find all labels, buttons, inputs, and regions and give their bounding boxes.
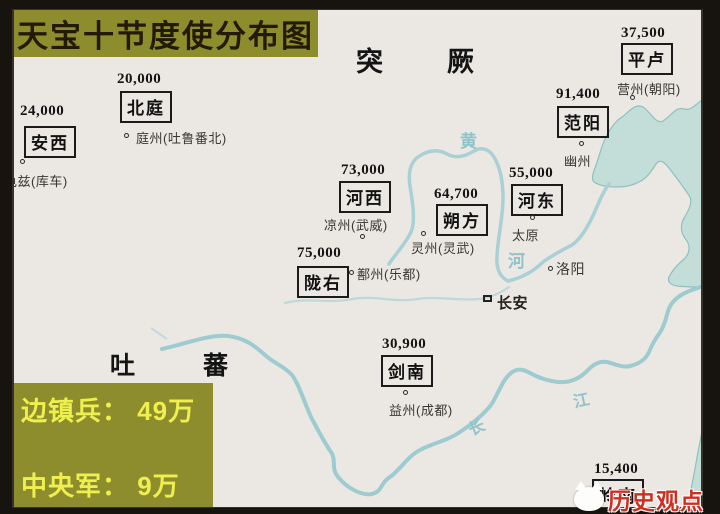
city-label-yingzhou: 营州(朝阳) <box>617 79 681 98</box>
map-title-bar: 天宝十节度使分布图 <box>13 10 318 57</box>
city-marker-lingzhou <box>421 231 426 236</box>
troops-anxi: 24,000 <box>20 103 64 120</box>
city-label-qiuci: 龟兹(库车) <box>4 171 68 190</box>
yellow-river-label-char1: 黄 <box>460 127 477 152</box>
troops-fanyang: 91,400 <box>556 86 600 103</box>
yangtze-label-char2: 江 <box>571 386 592 413</box>
troops-beiting: 20,000 <box>117 71 161 88</box>
garrison-box-pinglu: 平卢 <box>621 43 673 75</box>
yangtze-label-char1: 长 <box>464 412 488 440</box>
troops-hexi: 73,000 <box>341 162 385 179</box>
legend-central-troops: 中央军： 9万 <box>21 471 180 501</box>
city-marker-yizhou <box>403 390 408 395</box>
capital-label-changan: 长安 <box>497 292 528 313</box>
map-screenshot: 天宝十节度使分布图 突厥 吐蕃 黄 河 长 江 24,000 安西 龟兹(库车)… <box>0 0 720 514</box>
city-label-shanzhou: 鄯州(乐都) <box>357 264 421 283</box>
city-marker-qiuci <box>20 159 25 164</box>
troops-pinglu: 37,500 <box>621 25 665 42</box>
city-marker-liangzhou <box>360 234 365 239</box>
city-marker-yingzhou <box>630 95 635 100</box>
photo-border-left <box>0 0 12 514</box>
legend-border-troops: 边镇兵： 49万 <box>21 396 195 426</box>
garrison-box-jiannan: 剑南 <box>381 355 433 387</box>
garrison-box-fanyang: 范阳 <box>557 106 609 138</box>
city-label-luoyang: 洛阳 <box>556 259 585 279</box>
city-label-taiyuan: 太原 <box>512 225 539 244</box>
troops-lingnan: 15,400 <box>594 461 638 478</box>
garrison-box-longyou: 陇右 <box>297 266 349 298</box>
city-label-youzhou: 幽州 <box>564 151 591 170</box>
garrison-box-beiting: 北庭 <box>120 91 172 123</box>
capital-marker-changan <box>483 295 492 302</box>
troops-jiannan: 30,900 <box>382 336 426 353</box>
watermark: 历史观点 <box>574 482 704 514</box>
city-label-yizhou: 益州(成都) <box>389 400 453 419</box>
garrison-box-anxi: 安西 <box>24 126 76 158</box>
garrison-box-hexi: 河西 <box>339 181 391 213</box>
region-label-tubo: 吐蕃 <box>110 346 296 382</box>
yangtze-headwater <box>151 328 167 339</box>
cat-logo-icon <box>574 487 604 511</box>
city-label-liangzhou: 凉州(武威) <box>324 215 388 234</box>
troops-shuofang: 64,700 <box>434 186 478 203</box>
city-marker-shanzhou <box>349 270 354 275</box>
region-label-tujue: 突厥 <box>356 40 538 79</box>
city-label-lingzhou: 灵州(灵武) <box>411 238 475 257</box>
troops-longyou: 75,000 <box>297 245 341 262</box>
city-marker-luoyang <box>548 266 553 271</box>
troops-hedong: 55,000 <box>509 165 553 182</box>
map-title: 天宝十节度使分布图 <box>17 11 314 56</box>
legend-panel: 边镇兵： 49万 中央军： 9万 <box>12 383 213 514</box>
city-marker-tingzhou <box>124 133 129 138</box>
garrison-box-hedong: 河东 <box>511 184 563 216</box>
city-label-tingzhou: 庭州(吐鲁番北) <box>136 128 227 147</box>
sea-northeast <box>593 96 712 287</box>
yellow-river-label-char2: 河 <box>508 247 525 272</box>
photo-border-top <box>0 0 720 9</box>
photo-border-right <box>703 0 720 514</box>
city-marker-youzhou <box>579 141 584 146</box>
city-marker-taiyuan <box>530 215 535 220</box>
garrison-box-shuofang: 朔方 <box>436 204 488 236</box>
watermark-text: 历史观点 <box>608 482 704 514</box>
